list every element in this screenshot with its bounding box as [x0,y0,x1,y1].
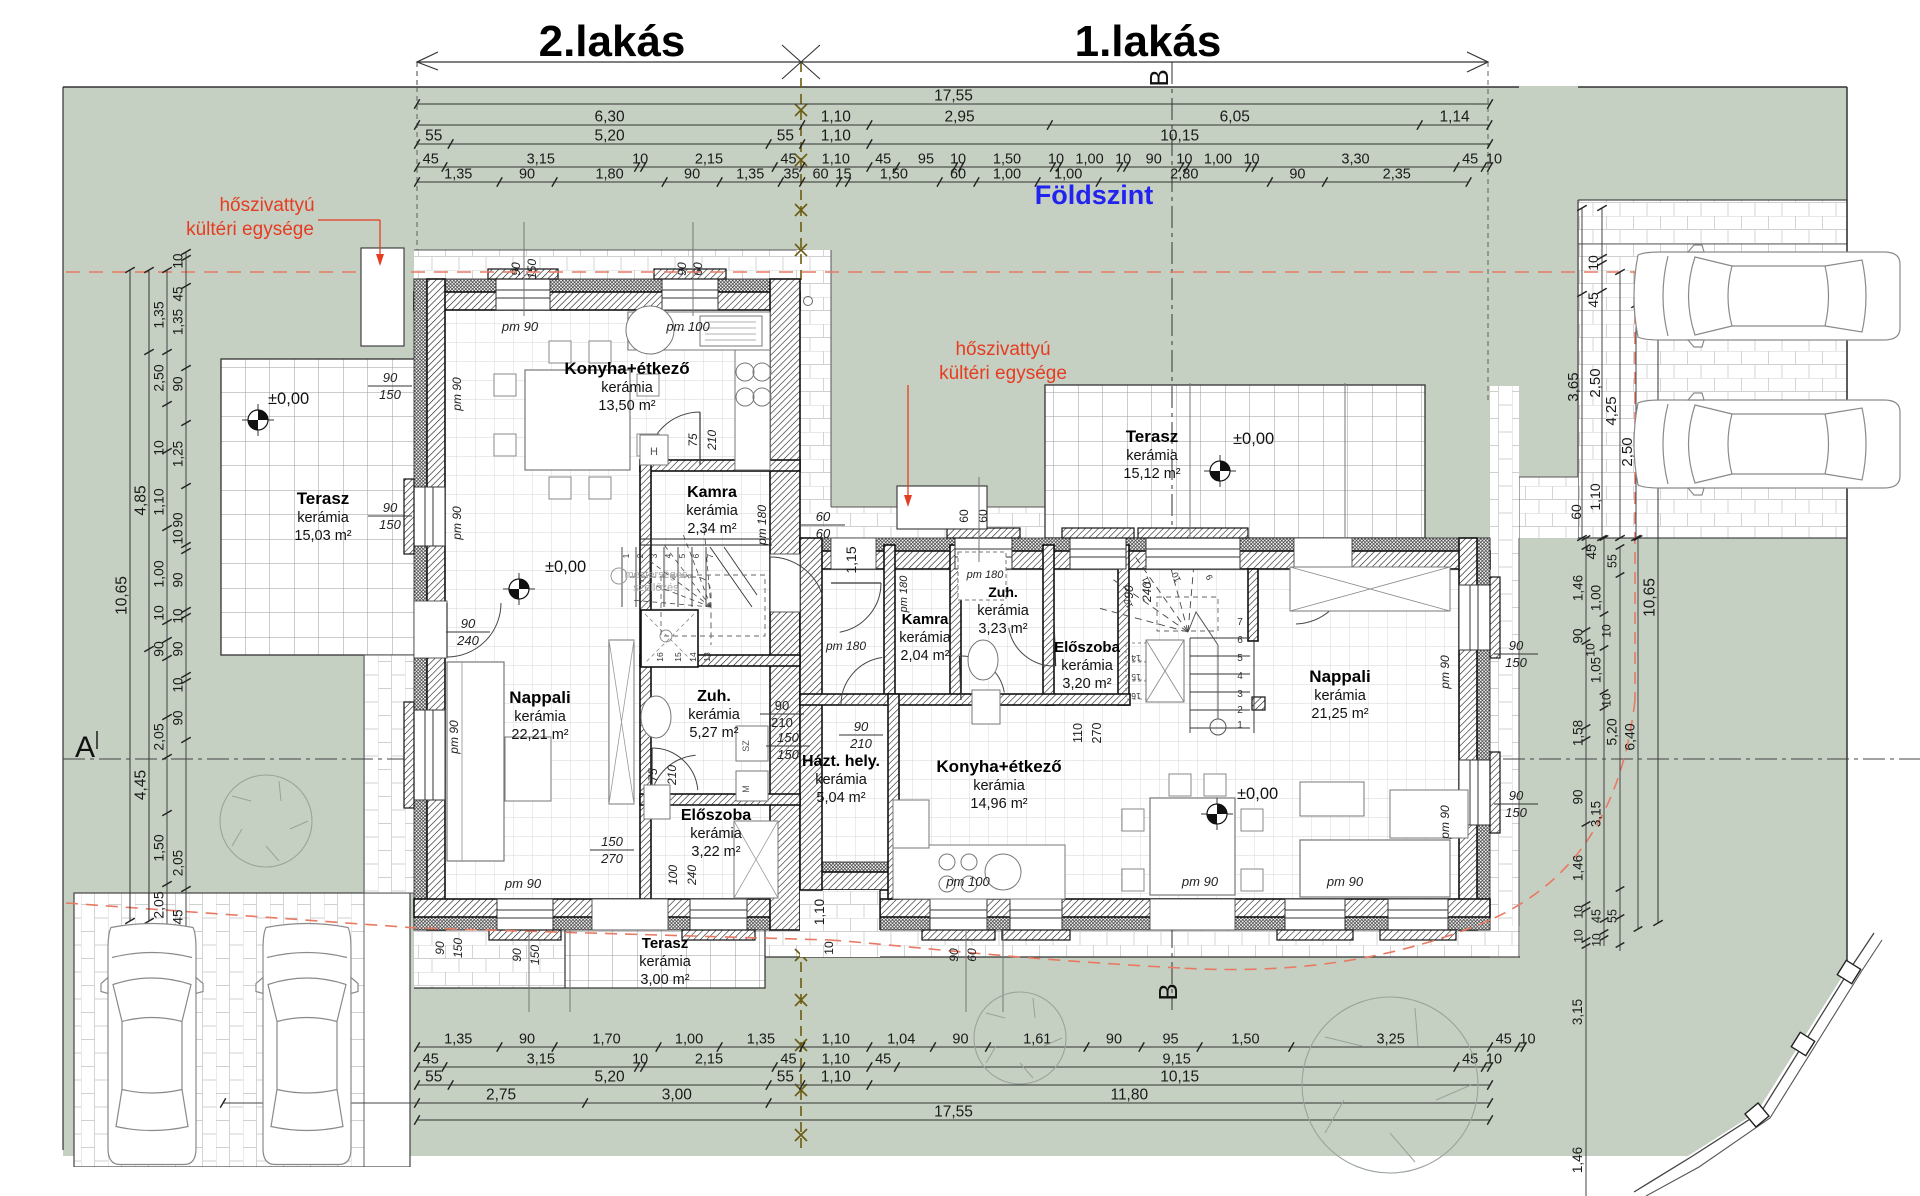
svg-text:10: 10 [822,941,836,955]
svg-text:mesterséges: mesterséges [625,569,688,581]
svg-text:45: 45 [780,152,796,168]
svg-text:kültéri egysége: kültéri egysége [186,219,314,240]
svg-text:kerámia: kerámia [1126,448,1179,464]
svg-text:pm 90: pm 90 [1438,655,1452,690]
svg-text:6,40: 6,40 [1622,723,1638,750]
svg-text:60: 60 [812,167,828,183]
svg-text:10: 10 [1590,933,1604,947]
svg-text:45: 45 [1590,909,1604,923]
svg-text:Zuh.: Zuh. [697,688,731,705]
svg-text:90: 90 [1509,638,1524,653]
svg-text:Házt. hely.: Házt. hely. [802,753,880,770]
svg-text:210: 210 [705,430,719,451]
svg-text:60: 60 [1568,504,1584,520]
svg-text:1.lakás: 1.lakás [1075,17,1222,66]
svg-text:kerámia: kerámia [639,954,692,970]
svg-text:45: 45 [1585,292,1601,308]
svg-text:5,20: 5,20 [1604,718,1620,745]
svg-text:1,46: 1,46 [1571,855,1586,881]
svg-text:10: 10 [1243,152,1259,168]
svg-text:Terasz: Terasz [642,935,688,952]
svg-text:10,65: 10,65 [114,576,131,615]
svg-text:10,15: 10,15 [1160,128,1199,145]
svg-text:10: 10 [1115,152,1131,168]
svg-text:3,15: 3,15 [1570,999,1585,1025]
svg-text:150: 150 [777,730,799,745]
svg-text:150: 150 [601,834,623,849]
svg-text:3: 3 [1237,689,1243,700]
svg-text:55: 55 [425,1069,442,1086]
svg-text:2,34 m²: 2,34 m² [687,521,736,537]
svg-text:270: 270 [600,851,623,866]
svg-text:B: B [1153,983,1183,1000]
svg-text:17,55: 17,55 [934,88,973,105]
svg-text:10: 10 [171,529,186,544]
svg-text:10: 10 [1176,152,1192,168]
svg-text:75: 75 [686,433,700,447]
svg-text:60: 60 [816,526,831,541]
svg-text:210: 210 [665,765,679,786]
svg-text:4,85: 4,85 [133,485,150,515]
svg-text:pm 90: pm 90 [1438,805,1452,840]
svg-text:270: 270 [1090,723,1104,744]
svg-text:kerámia: kerámia [899,630,952,646]
svg-text:pm 100: pm 100 [945,874,990,889]
svg-text:Konyha+étkező: Konyha+étkező [564,359,689,378]
svg-text:7: 7 [1237,617,1243,628]
svg-text:2,05: 2,05 [171,850,186,876]
svg-text:kerámia: kerámia [686,503,739,519]
svg-text:kerámia: kerámia [690,826,743,842]
svg-text:60: 60 [957,509,971,523]
svg-text:17,55: 17,55 [934,1104,973,1121]
svg-text:1,25: 1,25 [171,441,186,467]
svg-text:3,25: 3,25 [1377,1032,1405,1048]
svg-text:10: 10 [171,253,186,268]
svg-text:90: 90 [947,948,961,962]
svg-text:B: B [1144,69,1174,86]
svg-text:SZ: SZ [741,740,751,752]
svg-text:1,04: 1,04 [887,1032,915,1048]
svg-text:Terasz: Terasz [297,489,350,508]
svg-text:90: 90 [383,500,398,515]
svg-text:45: 45 [1462,152,1478,168]
svg-text:3,20 m²: 3,20 m² [1062,676,1111,692]
svg-text:10: 10 [632,1052,648,1068]
svg-text:90: 90 [510,948,524,962]
svg-text:150: 150 [777,747,799,762]
svg-text:1,00: 1,00 [1054,167,1082,183]
svg-text:kerámia: kerámia [514,709,567,725]
svg-text:60: 60 [950,167,966,183]
svg-text:16: 16 [655,652,665,662]
svg-text:pm 90: pm 90 [450,506,464,541]
svg-text:240: 240 [1140,582,1154,603]
svg-text:2: 2 [1237,705,1243,716]
svg-text:210: 210 [771,715,793,730]
svg-text:2,15: 2,15 [695,152,723,168]
svg-text:10: 10 [1585,255,1601,271]
svg-text:45: 45 [423,1052,439,1068]
svg-text:10: 10 [950,152,966,168]
svg-text:kerámia: kerámia [1314,688,1367,704]
svg-text:10: 10 [1048,152,1064,168]
svg-text:14: 14 [1131,653,1141,663]
svg-text:10: 10 [151,440,167,456]
svg-text:4: 4 [1237,671,1243,682]
svg-text:10: 10 [1519,1032,1535,1048]
svg-text:90: 90 [1571,628,1586,643]
svg-text:5: 5 [1237,653,1243,664]
svg-text:2,50: 2,50 [151,364,167,391]
svg-text:3,15: 3,15 [527,152,555,168]
svg-text:1,00: 1,00 [1075,152,1103,168]
svg-text:1,46: 1,46 [1570,1147,1585,1173]
svg-text:5,27 m²: 5,27 m² [689,725,738,741]
svg-text:1,35: 1,35 [444,167,472,183]
svg-text:95: 95 [918,152,934,168]
svg-text:1,50: 1,50 [1231,1032,1259,1048]
svg-text:90: 90 [171,710,186,725]
svg-text:3,00 m²: 3,00 m² [640,972,689,988]
svg-text:1,35: 1,35 [171,309,186,335]
svg-text:2.lakás: 2.lakás [539,17,686,66]
svg-text:Nappali: Nappali [509,688,570,707]
svg-text:90: 90 [171,641,186,656]
svg-text:55: 55 [777,128,794,145]
svg-text:Kamra: Kamra [902,611,949,628]
svg-text:2,15: 2,15 [695,1052,723,1068]
svg-text:2,50: 2,50 [1587,368,1604,397]
svg-text:3,30: 3,30 [1341,152,1369,168]
svg-text:90: 90 [1146,152,1162,168]
svg-text:Előszoba: Előszoba [681,807,751,824]
svg-text:90: 90 [1289,167,1305,183]
svg-text:15: 15 [835,167,851,183]
svg-text:Előszoba: Előszoba [1054,639,1121,656]
svg-text:M: M [741,785,751,793]
svg-text:4,45: 4,45 [133,770,150,800]
svg-text:pm 100: pm 100 [665,319,710,334]
svg-text:3: 3 [650,553,659,558]
svg-text:1,10: 1,10 [151,488,167,515]
svg-text:kerámia: kerámia [688,707,741,723]
svg-text:90: 90 [461,616,476,631]
svg-text:10,65: 10,65 [1642,578,1659,617]
svg-text:90: 90 [171,376,186,391]
svg-text:2,05: 2,05 [151,891,167,918]
svg-text:60: 60 [965,948,979,962]
svg-text:45: 45 [1496,1032,1512,1048]
svg-text:6: 6 [692,553,701,558]
svg-text:1,00: 1,00 [151,560,167,587]
svg-text:90: 90 [433,941,447,955]
svg-text:kerámia: kerámia [601,380,654,396]
svg-text:90: 90 [1106,1032,1122,1048]
svg-text:110: 110 [1071,723,1085,743]
svg-text:1,10: 1,10 [822,1052,850,1068]
svg-text:60: 60 [816,509,831,524]
svg-text:1,58: 1,58 [1571,720,1586,746]
svg-text:1,00: 1,00 [1589,585,1604,611]
svg-text:1,46: 1,46 [1571,575,1586,601]
svg-text:2: 2 [636,553,645,558]
svg-text:90: 90 [1122,585,1136,599]
svg-text:1,35: 1,35 [747,1032,775,1048]
svg-text:5,04 m²: 5,04 m² [816,790,865,806]
svg-text:kerámia: kerámia [977,603,1030,619]
svg-text:150: 150 [1505,805,1527,820]
svg-text:±0,00: ±0,00 [545,558,586,576]
svg-text:5: 5 [678,553,687,558]
svg-text:13,50 m²: 13,50 m² [598,398,655,414]
svg-text:1,10: 1,10 [822,1032,850,1048]
svg-text:1,10: 1,10 [821,128,852,145]
svg-text:±0,00: ±0,00 [1237,785,1278,803]
svg-text:90: 90 [519,167,535,183]
svg-text:75: 75 [646,768,660,782]
svg-text:Kamra: Kamra [687,484,737,501]
svg-text:pm 90: pm 90 [1181,874,1219,889]
svg-text:1,35: 1,35 [736,167,764,183]
svg-text:90: 90 [854,719,869,734]
svg-text:90: 90 [1509,788,1524,803]
svg-text:45: 45 [171,286,186,301]
svg-text:10: 10 [1600,624,1614,638]
svg-text:pm 90: pm 90 [504,876,542,891]
svg-text:4: 4 [664,553,673,558]
svg-text:240: 240 [456,633,479,648]
svg-text:21,25 m²: 21,25 m² [1311,706,1368,722]
svg-text:2,04 m²: 2,04 m² [900,648,949,664]
svg-text:pm 90: pm 90 [1326,874,1364,889]
svg-text:90: 90 [151,641,167,657]
svg-text:Zuh.: Zuh. [988,584,1018,600]
svg-text:10: 10 [151,605,167,621]
svg-text:150: 150 [451,938,465,958]
svg-text:9,15: 9,15 [1163,1052,1191,1068]
svg-text:kerámia: kerámia [1061,658,1114,674]
svg-text:Nappali: Nappali [1309,667,1370,686]
svg-text:150: 150 [379,517,401,532]
svg-text:hőszivattyú: hőszivattyú [219,195,314,216]
svg-text:1,10: 1,10 [821,109,852,126]
svg-text:13: 13 [702,652,712,662]
svg-text:55: 55 [425,128,442,145]
svg-text:10: 10 [1572,905,1586,919]
svg-text:2,35: 2,35 [1383,167,1411,183]
svg-text:10: 10 [1572,929,1586,943]
svg-text:45: 45 [780,1052,796,1068]
svg-text:1: 1 [622,553,631,558]
svg-text:1,50: 1,50 [880,167,908,183]
svg-text:1,10: 1,10 [822,152,850,168]
svg-text:3,00: 3,00 [662,1087,693,1104]
svg-text:15: 15 [1131,672,1141,682]
svg-text:10: 10 [1486,1052,1502,1068]
svg-text:1,00: 1,00 [993,167,1021,183]
svg-text:45: 45 [423,152,439,168]
svg-text:kültéri egysége: kültéri egysége [939,363,1067,384]
svg-text:2,05: 2,05 [151,723,167,750]
svg-text:1,35: 1,35 [444,1032,472,1048]
svg-text:55: 55 [777,1069,794,1086]
svg-text:150: 150 [528,945,542,965]
svg-text:90: 90 [383,370,398,385]
svg-text:pm 180: pm 180 [755,505,769,546]
svg-text:6: 6 [1237,635,1243,646]
svg-text:7: 7 [706,553,715,558]
svg-text:pm 90: pm 90 [501,319,539,334]
svg-text:kerámia: kerámia [297,510,350,526]
svg-text:±0,00: ±0,00 [1233,430,1274,448]
svg-text:10: 10 [171,677,186,692]
svg-text:2,75: 2,75 [486,1087,516,1104]
svg-text:10: 10 [171,608,186,623]
svg-text:5,20: 5,20 [595,1069,626,1086]
svg-text:3,65: 3,65 [1565,372,1582,401]
svg-text:pm 180: pm 180 [966,569,1005,581]
svg-text:1,00: 1,00 [675,1032,703,1048]
svg-text:90: 90 [952,1032,968,1048]
svg-text:55: 55 [1606,554,1620,568]
svg-text:95: 95 [1162,1032,1178,1048]
svg-text:hőszivattyú: hőszivattyú [955,339,1050,360]
svg-text:15: 15 [673,652,683,662]
svg-text:90: 90 [675,262,689,276]
svg-text:Terasz: Terasz [1126,427,1179,446]
svg-text:150: 150 [1505,655,1527,670]
svg-text:pm 90: pm 90 [447,720,461,755]
svg-text:H: H [650,446,658,458]
svg-text:90: 90 [519,1032,535,1048]
svg-text:3,22 m²: 3,22 m² [691,844,740,860]
svg-text:15,03 m²: 15,03 m² [294,528,351,544]
svg-text:1,14: 1,14 [1439,109,1470,126]
svg-text:90: 90 [684,167,700,183]
svg-text:55: 55 [1606,909,1620,923]
svg-text:1: 1 [1237,720,1243,731]
svg-text:1,10: 1,10 [1587,483,1603,510]
svg-text:1,70: 1,70 [592,1032,620,1048]
svg-text:45: 45 [171,909,186,924]
svg-text:90: 90 [775,698,789,713]
svg-text:22,21 m²: 22,21 m² [511,727,568,743]
svg-text:2,95: 2,95 [945,109,975,126]
svg-text:1,10: 1,10 [821,1069,852,1086]
svg-text:10: 10 [1600,693,1614,707]
svg-text:90: 90 [171,572,186,587]
svg-text:35: 35 [783,167,799,183]
svg-text:1,00: 1,00 [1204,152,1232,168]
svg-text:1,50: 1,50 [993,152,1021,168]
svg-text:11,80: 11,80 [1110,1087,1148,1104]
svg-text:pm 180: pm 180 [825,639,866,653]
svg-text:90: 90 [509,262,523,276]
svg-text:6,30: 6,30 [595,109,626,126]
svg-text:14,96 m²: 14,96 m² [970,796,1027,812]
svg-text:16: 16 [1131,691,1141,701]
svg-text:5,20: 5,20 [595,128,626,145]
svg-text:pm 180: pm 180 [898,575,910,614]
svg-text:10: 10 [1584,643,1598,657]
svg-text:szellőzés: szellőzés [633,582,679,594]
svg-text:6,05: 6,05 [1220,109,1250,126]
svg-text:4,25: 4,25 [1603,396,1620,425]
svg-text:240: 240 [685,865,699,886]
svg-text:150: 150 [525,259,539,279]
svg-text:A: A [75,731,95,764]
svg-text:kerámia: kerámia [973,778,1026,794]
svg-text:10,15: 10,15 [1160,1069,1199,1086]
svg-text:10: 10 [632,152,648,168]
svg-text:1,15: 1,15 [843,546,859,573]
svg-text:150: 150 [379,387,401,402]
svg-text:60: 60 [976,509,990,523]
svg-text:100: 100 [666,865,680,885]
svg-text:210: 210 [849,736,872,751]
svg-text:pm 90: pm 90 [450,377,464,412]
svg-text:kerámia: kerámia [815,772,868,788]
svg-text:Konyha+étkező: Konyha+étkező [936,757,1061,776]
svg-text:2,80: 2,80 [1170,167,1198,183]
svg-text:1,80: 1,80 [595,167,623,183]
svg-text:10: 10 [1486,152,1502,168]
svg-text:90: 90 [1571,789,1586,804]
svg-text:1,35: 1,35 [151,301,167,328]
svg-text:1,05: 1,05 [1589,657,1604,683]
svg-text:3,23 m²: 3,23 m² [978,621,1027,637]
svg-text:90: 90 [171,512,186,527]
svg-text:1,50: 1,50 [151,834,167,861]
svg-text:45: 45 [875,152,891,168]
svg-text:1,10: 1,10 [812,899,827,925]
svg-text:45: 45 [875,1052,891,1068]
svg-text:3,15: 3,15 [527,1052,555,1068]
svg-text:14: 14 [688,652,698,662]
svg-text:Földszint: Földszint [1035,180,1153,210]
svg-text:3,15: 3,15 [1589,801,1604,827]
svg-text:15,12 m²: 15,12 m² [1123,466,1180,482]
svg-text:±0,00: ±0,00 [268,390,309,408]
